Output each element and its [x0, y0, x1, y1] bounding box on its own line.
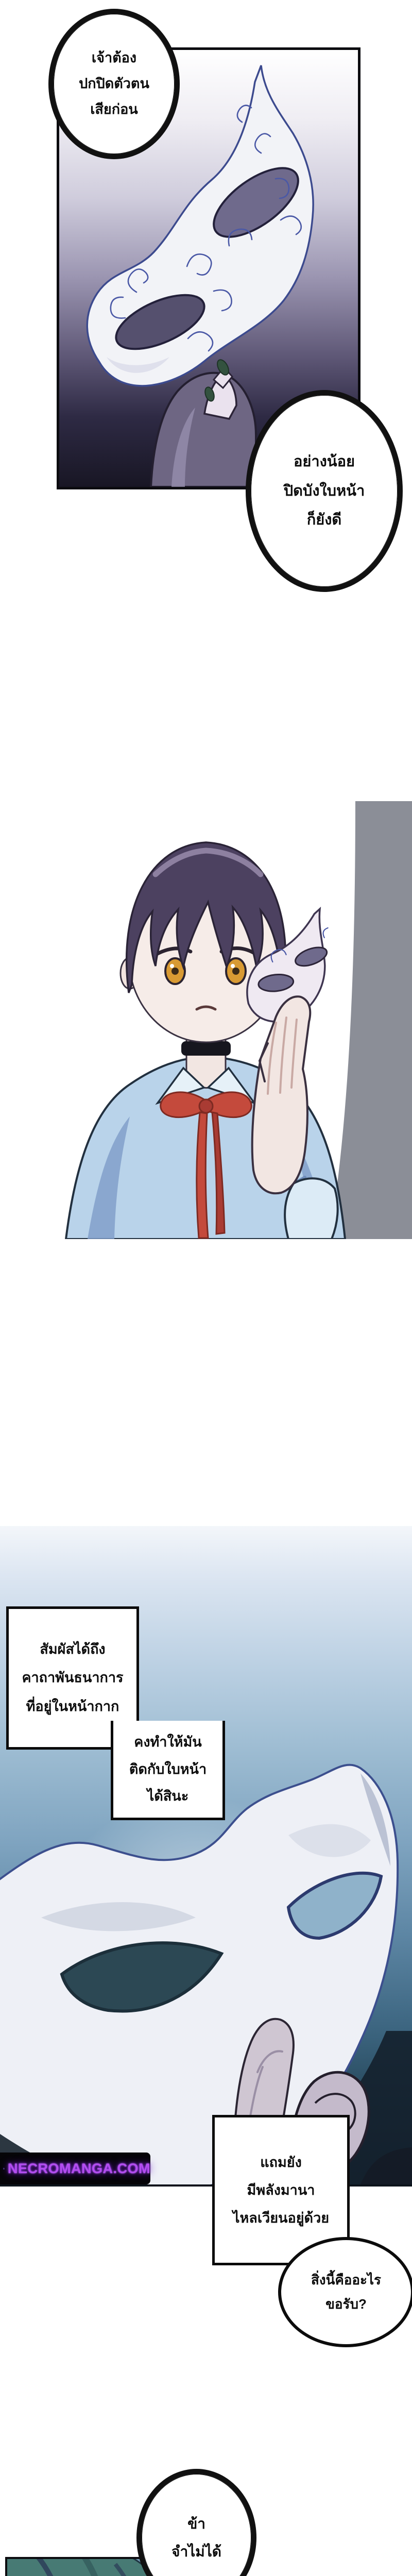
- black-choker: [181, 1041, 231, 1056]
- comic-page: เจ้าต้อง ปกปิดตัวตน เสียก่อน อย่างน้อย ป…: [0, 0, 412, 2576]
- speech-bubble-at-least: อย่างน้อย ปิดบังใบหน้า ก็ยังดี: [246, 391, 402, 591]
- caption-text: สัมผัสได้ถึง คาถาพันธนาการ ที่อยู่ในหน้า…: [22, 1635, 123, 1721]
- boy-portrait-illustration: [0, 801, 412, 1239]
- site-watermark[interactable]: NECROMANGA.COM: [0, 2153, 150, 2184]
- speech-text: เจ้าต้อง ปกปิดตัวตน เสียก่อน: [79, 45, 149, 123]
- caption-box-stick: คงทำให้มัน ติดกับใบหน้า ได้สินะ: [111, 1721, 225, 1820]
- caption-text: แถมยัง มีพลังมานา ไหลเวียนอยู่ด้วย: [233, 2148, 329, 2232]
- speech-bubble-what-is: สิ่งนี้คืออะไร ขอรับ?: [278, 2237, 412, 2347]
- speech-text: สิ่งนี้คืออะไร ขอรับ?: [311, 2268, 381, 2316]
- speech-text: อย่างน้อย ปิดบังใบหน้า ก็ยังดี: [284, 447, 365, 535]
- panel-boy-portrait: [0, 801, 412, 1239]
- shirt-cuff: [285, 1178, 338, 1239]
- speech-bubble-remember: ข้า จำไม่ได้: [137, 2469, 256, 2576]
- hooded-mage-icon: [3, 2155, 5, 2182]
- caption-text: คงทำให้มัน ติดกับใบหน้า ได้สินะ: [129, 1728, 207, 1810]
- speech-text: ข้า จำไม่ได้: [171, 2510, 221, 2565]
- watermark-label: NECROMANGA.COM: [8, 2161, 150, 2177]
- speech-bubble-reveal: เจ้าต้อง ปกปิดตัวตน เสียก่อน: [49, 9, 179, 159]
- boy-hand: [252, 996, 311, 1193]
